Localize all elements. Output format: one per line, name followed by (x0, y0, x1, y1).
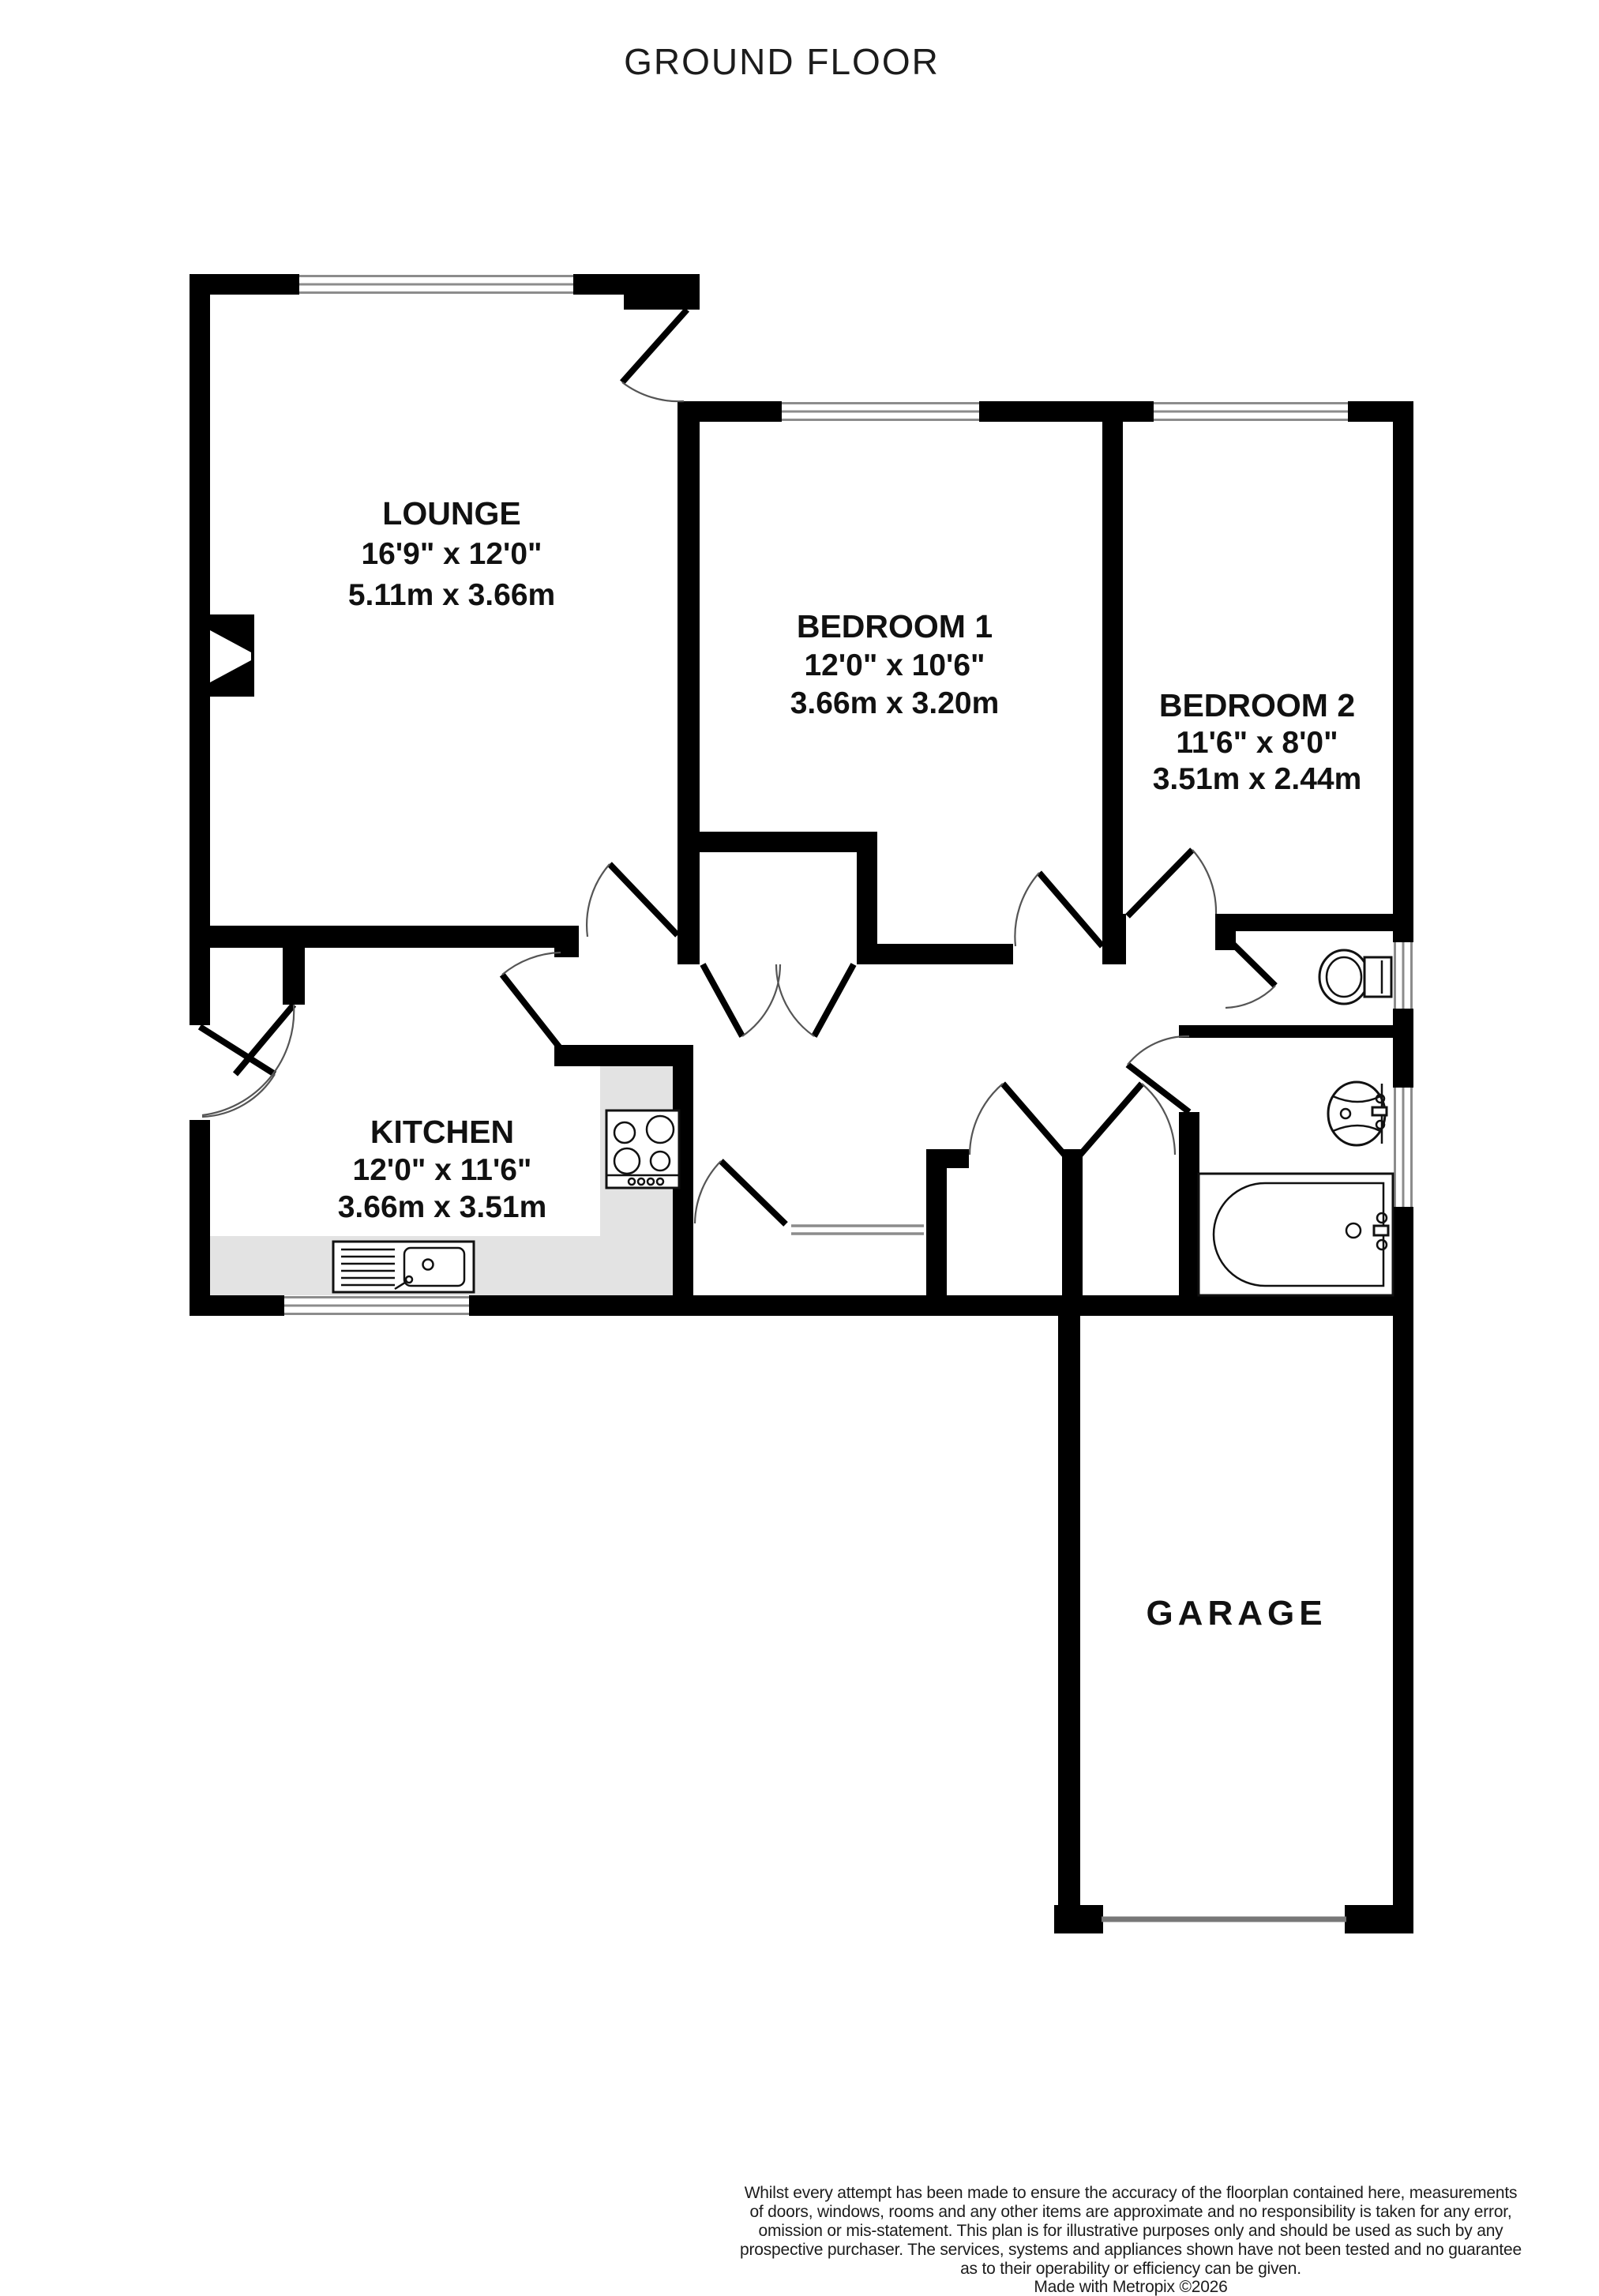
wall-left-upper (190, 274, 210, 1025)
bathtub-icon (1199, 1174, 1393, 1295)
kitchen-window-icon (284, 1295, 469, 1316)
wall-bed2-bottom (1234, 914, 1393, 931)
toilet-icon (1319, 950, 1391, 1004)
bed2-door-icon (1128, 850, 1216, 916)
wall-kitchen-top (554, 1045, 693, 1066)
floorplan-page: GROUND FLOOR (0, 0, 1599, 2296)
wall-lounge-bottom-jamb (554, 946, 579, 957)
garage-label: GARAGE (1146, 1594, 1327, 1633)
wall-cupboard-top (700, 832, 877, 852)
lounge-dims-metric: 5.11m x 3.66m (348, 578, 555, 612)
disclaimer-line-4: prospective purchaser. The services, sys… (740, 2241, 1522, 2259)
wc-window-icon (1393, 942, 1413, 1009)
bed2-window-icon (1154, 401, 1348, 422)
wall-garage-corner-right (1345, 1905, 1413, 1933)
wall-left-lower (190, 1120, 210, 1316)
wall-cupboard-right (857, 832, 877, 964)
entry-inner-door-icon (202, 1005, 294, 1115)
page-title: GROUND FLOOR (624, 41, 940, 82)
bed2-dims-metric: 3.51m x 2.44m (1153, 762, 1362, 796)
bed1-window-icon (782, 401, 979, 422)
bed2-label: BEDROOM 2 (1159, 687, 1355, 723)
lounge-label: LOUNGE (382, 495, 520, 532)
hall-opening-icon (791, 1226, 924, 1234)
wall-entry-stub (283, 926, 305, 1005)
wc-door-icon (1224, 935, 1275, 1008)
bathroom-window-icon (1393, 1088, 1413, 1207)
disclaimer: Whilst every attempt has been made to en… (740, 2184, 1522, 2296)
fireplace-icon (210, 614, 254, 697)
store-left-door-icon (970, 1084, 1064, 1155)
hob-icon (606, 1110, 679, 1188)
bed1-dims-metric: 3.66m x 3.20m (790, 686, 1000, 720)
wall-garage-left (1058, 1316, 1080, 1907)
lounge-window-icon (299, 274, 573, 295)
lounge-hall-door-icon (587, 864, 678, 937)
wall-lounge-corner (624, 274, 700, 310)
hall-rear-door-icon (695, 1161, 786, 1224)
made-with-credit: Made with Metropix ©2026 (1034, 2278, 1227, 2296)
room-labels: LOUNGE 16'9" x 12'0" 5.11m x 3.66m BEDRO… (338, 495, 1362, 1633)
wall-hall-north (877, 944, 1013, 964)
disclaimer-line-3: omission or mis-statement. This plan is … (759, 2222, 1504, 2240)
wall-garage-corner-left (1054, 1905, 1103, 1933)
wall-store-left (926, 1149, 947, 1316)
wall-store-mid (1062, 1149, 1083, 1316)
kitchen-dims-imperial: 12'0" x 11'6" (353, 1153, 532, 1187)
walls (190, 274, 1413, 1933)
store-right-door-icon (1080, 1084, 1175, 1155)
wall-bed1-bed2-jamb (1102, 914, 1126, 964)
disclaimer-line-2: of doors, windows, rooms and any other i… (749, 2203, 1511, 2221)
bed1-door-icon (1015, 873, 1102, 946)
lounge-bed1-door-icon (622, 310, 687, 401)
cupboard-double-door-icon (703, 964, 854, 1036)
wall-store-left-jamb (947, 1149, 969, 1168)
wall-bath-left (1179, 1112, 1199, 1316)
kitchen-label: KITCHEN (370, 1114, 514, 1150)
lounge-dims-imperial: 16'9" x 12'0" (361, 537, 542, 571)
bed2-dims-imperial: 11'6" x 8'0" (1176, 726, 1338, 760)
basin-icon (1328, 1082, 1387, 1145)
wall-bed1-bed2-divider (1102, 401, 1123, 914)
wall-wc-bath-divider (1179, 1025, 1393, 1038)
bed1-label: BEDROOM 1 (797, 608, 993, 644)
sink-icon (333, 1242, 474, 1292)
disclaimer-line-1: Whilst every attempt has been made to en… (745, 2184, 1518, 2202)
kitchen-dims-metric: 3.66m x 3.51m (338, 1190, 547, 1224)
wall-lounge-bed1-divider (678, 401, 700, 964)
bed1-dims-imperial: 12'0" x 10'6" (804, 648, 985, 682)
disclaimer-line-5: as to their operability or efficiency ca… (960, 2260, 1301, 2278)
wall-lounge-bottom (190, 926, 579, 948)
kitchen-door-icon (502, 953, 561, 1049)
floorplan-drawing: GROUND FLOOR (0, 0, 1599, 2296)
